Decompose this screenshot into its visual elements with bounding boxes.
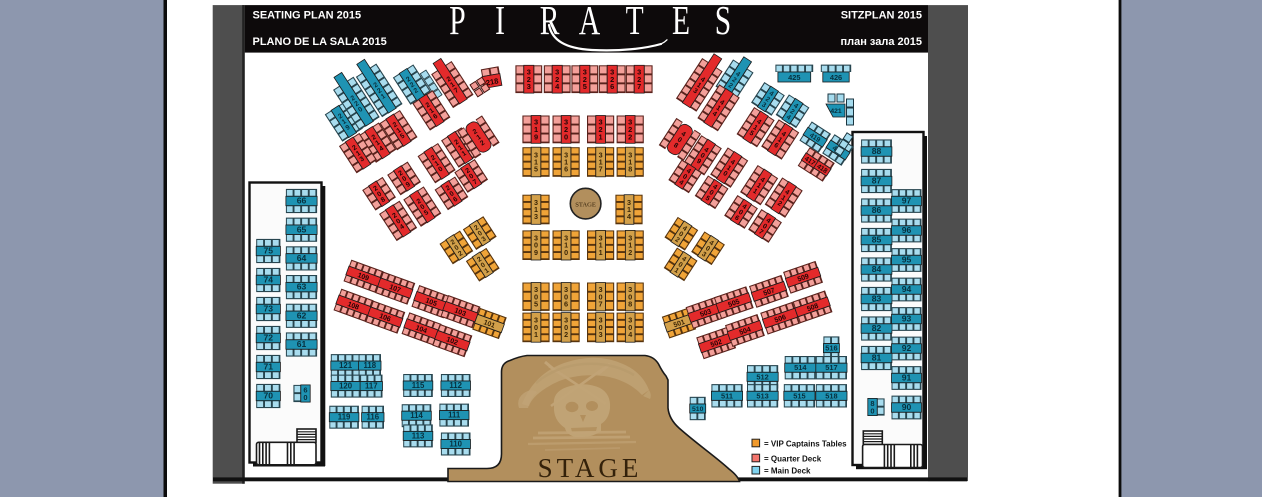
- svg-text:117: 117: [365, 382, 378, 391]
- svg-text:83: 83: [872, 294, 882, 304]
- svg-text:308: 308: [628, 285, 632, 309]
- svg-text:94: 94: [902, 284, 912, 294]
- svg-text:309: 309: [534, 234, 538, 257]
- svg-text:517: 517: [825, 363, 837, 372]
- svg-text:425: 425: [788, 73, 800, 82]
- svg-text:516: 516: [825, 344, 837, 353]
- svg-text:113: 113: [412, 431, 425, 440]
- svg-text:план зала 2015: план зала 2015: [840, 36, 922, 48]
- svg-text:116: 116: [367, 413, 380, 422]
- svg-text:121: 121: [339, 361, 353, 370]
- svg-text:85: 85: [872, 235, 882, 245]
- svg-text:65: 65: [297, 224, 307, 234]
- svg-text:426: 426: [830, 73, 842, 82]
- svg-text:111: 111: [448, 411, 461, 420]
- svg-text:318: 318: [628, 150, 632, 173]
- svg-text:74: 74: [264, 275, 274, 285]
- svg-text:514: 514: [794, 363, 807, 372]
- svg-text:320: 320: [564, 118, 568, 142]
- svg-text:95: 95: [902, 255, 912, 265]
- svg-text:T: T: [626, 0, 644, 43]
- svg-text:325: 325: [583, 67, 587, 91]
- svg-text:64: 64: [297, 253, 307, 263]
- svg-text:96: 96: [902, 225, 912, 235]
- svg-text:316: 316: [564, 150, 568, 173]
- svg-text:307: 307: [599, 285, 603, 309]
- svg-text:110: 110: [449, 440, 462, 449]
- svg-text:306: 306: [564, 285, 568, 309]
- svg-text:75: 75: [264, 246, 274, 256]
- svg-text:322: 322: [628, 118, 632, 142]
- svg-text:118: 118: [364, 361, 377, 370]
- svg-text:SITZPLAN 2015: SITZPLAN 2015: [841, 10, 922, 22]
- svg-text:515: 515: [793, 391, 805, 400]
- svg-text:86: 86: [872, 205, 882, 215]
- svg-text:518: 518: [825, 391, 837, 400]
- svg-text:93: 93: [902, 314, 912, 324]
- svg-text:A: A: [579, 0, 600, 43]
- svg-text:STAGE: STAGE: [538, 453, 643, 483]
- svg-text:62: 62: [297, 310, 307, 320]
- svg-text:512: 512: [756, 372, 768, 381]
- svg-text:P: P: [449, 0, 465, 43]
- svg-text:72: 72: [264, 333, 274, 343]
- svg-text:60: 60: [303, 385, 307, 402]
- svg-text:80: 80: [870, 399, 874, 416]
- svg-text:71: 71: [264, 362, 274, 372]
- svg-text:70: 70: [264, 391, 274, 401]
- svg-text:112: 112: [449, 381, 462, 390]
- svg-text:120: 120: [339, 382, 353, 391]
- svg-text:63: 63: [297, 282, 307, 292]
- svg-text:326: 326: [610, 67, 614, 91]
- svg-text:323: 323: [527, 67, 531, 91]
- svg-text:E: E: [672, 0, 690, 43]
- svg-text:97: 97: [902, 196, 912, 206]
- svg-text:510: 510: [692, 406, 704, 413]
- svg-text:321: 321: [599, 118, 603, 142]
- svg-text:119: 119: [338, 413, 351, 422]
- svg-text:66: 66: [297, 196, 307, 206]
- svg-text:327: 327: [637, 67, 641, 91]
- svg-text:114: 114: [410, 411, 423, 420]
- svg-text:301: 301: [534, 316, 538, 339]
- svg-text:= Main Deck: = Main Deck: [764, 467, 811, 476]
- svg-text:PLANO DE LA SALA 2015: PLANO DE LA SALA 2015: [253, 36, 387, 48]
- svg-text:90: 90: [902, 402, 912, 412]
- svg-text:92: 92: [902, 343, 912, 353]
- svg-text:SEATING PLAN 2015: SEATING PLAN 2015: [253, 10, 362, 22]
- svg-text:313: 313: [534, 198, 538, 221]
- svg-text:84: 84: [872, 264, 882, 274]
- svg-text:= Quarter Deck: = Quarter Deck: [764, 454, 822, 463]
- svg-text:421: 421: [830, 108, 842, 115]
- svg-text:511: 511: [721, 391, 733, 400]
- svg-text:305: 305: [534, 285, 538, 309]
- svg-text:= VIP Captains Tables: = VIP Captains Tables: [764, 439, 847, 448]
- svg-text:315: 315: [534, 150, 538, 173]
- svg-text:312: 312: [628, 234, 632, 257]
- svg-text:115: 115: [412, 381, 425, 390]
- svg-text:91: 91: [902, 373, 912, 383]
- svg-text:I: I: [495, 0, 505, 43]
- svg-text:87: 87: [872, 176, 882, 186]
- svg-text:61: 61: [297, 339, 307, 349]
- svg-text:311: 311: [599, 234, 603, 257]
- svg-text:304: 304: [628, 316, 632, 339]
- svg-text:R: R: [540, 0, 560, 43]
- svg-text:88: 88: [872, 146, 882, 156]
- svg-text:82: 82: [872, 323, 882, 333]
- svg-text:81: 81: [872, 353, 882, 363]
- svg-text:STAGE: STAGE: [575, 202, 596, 209]
- svg-text:513: 513: [756, 391, 768, 400]
- svg-text:317: 317: [599, 150, 603, 173]
- svg-text:310: 310: [564, 234, 568, 257]
- svg-text:303: 303: [599, 316, 603, 339]
- svg-text:319: 319: [534, 118, 538, 142]
- svg-text:S: S: [715, 0, 731, 43]
- svg-text:73: 73: [264, 304, 274, 314]
- svg-text:302: 302: [564, 316, 568, 339]
- svg-text:314: 314: [627, 198, 631, 221]
